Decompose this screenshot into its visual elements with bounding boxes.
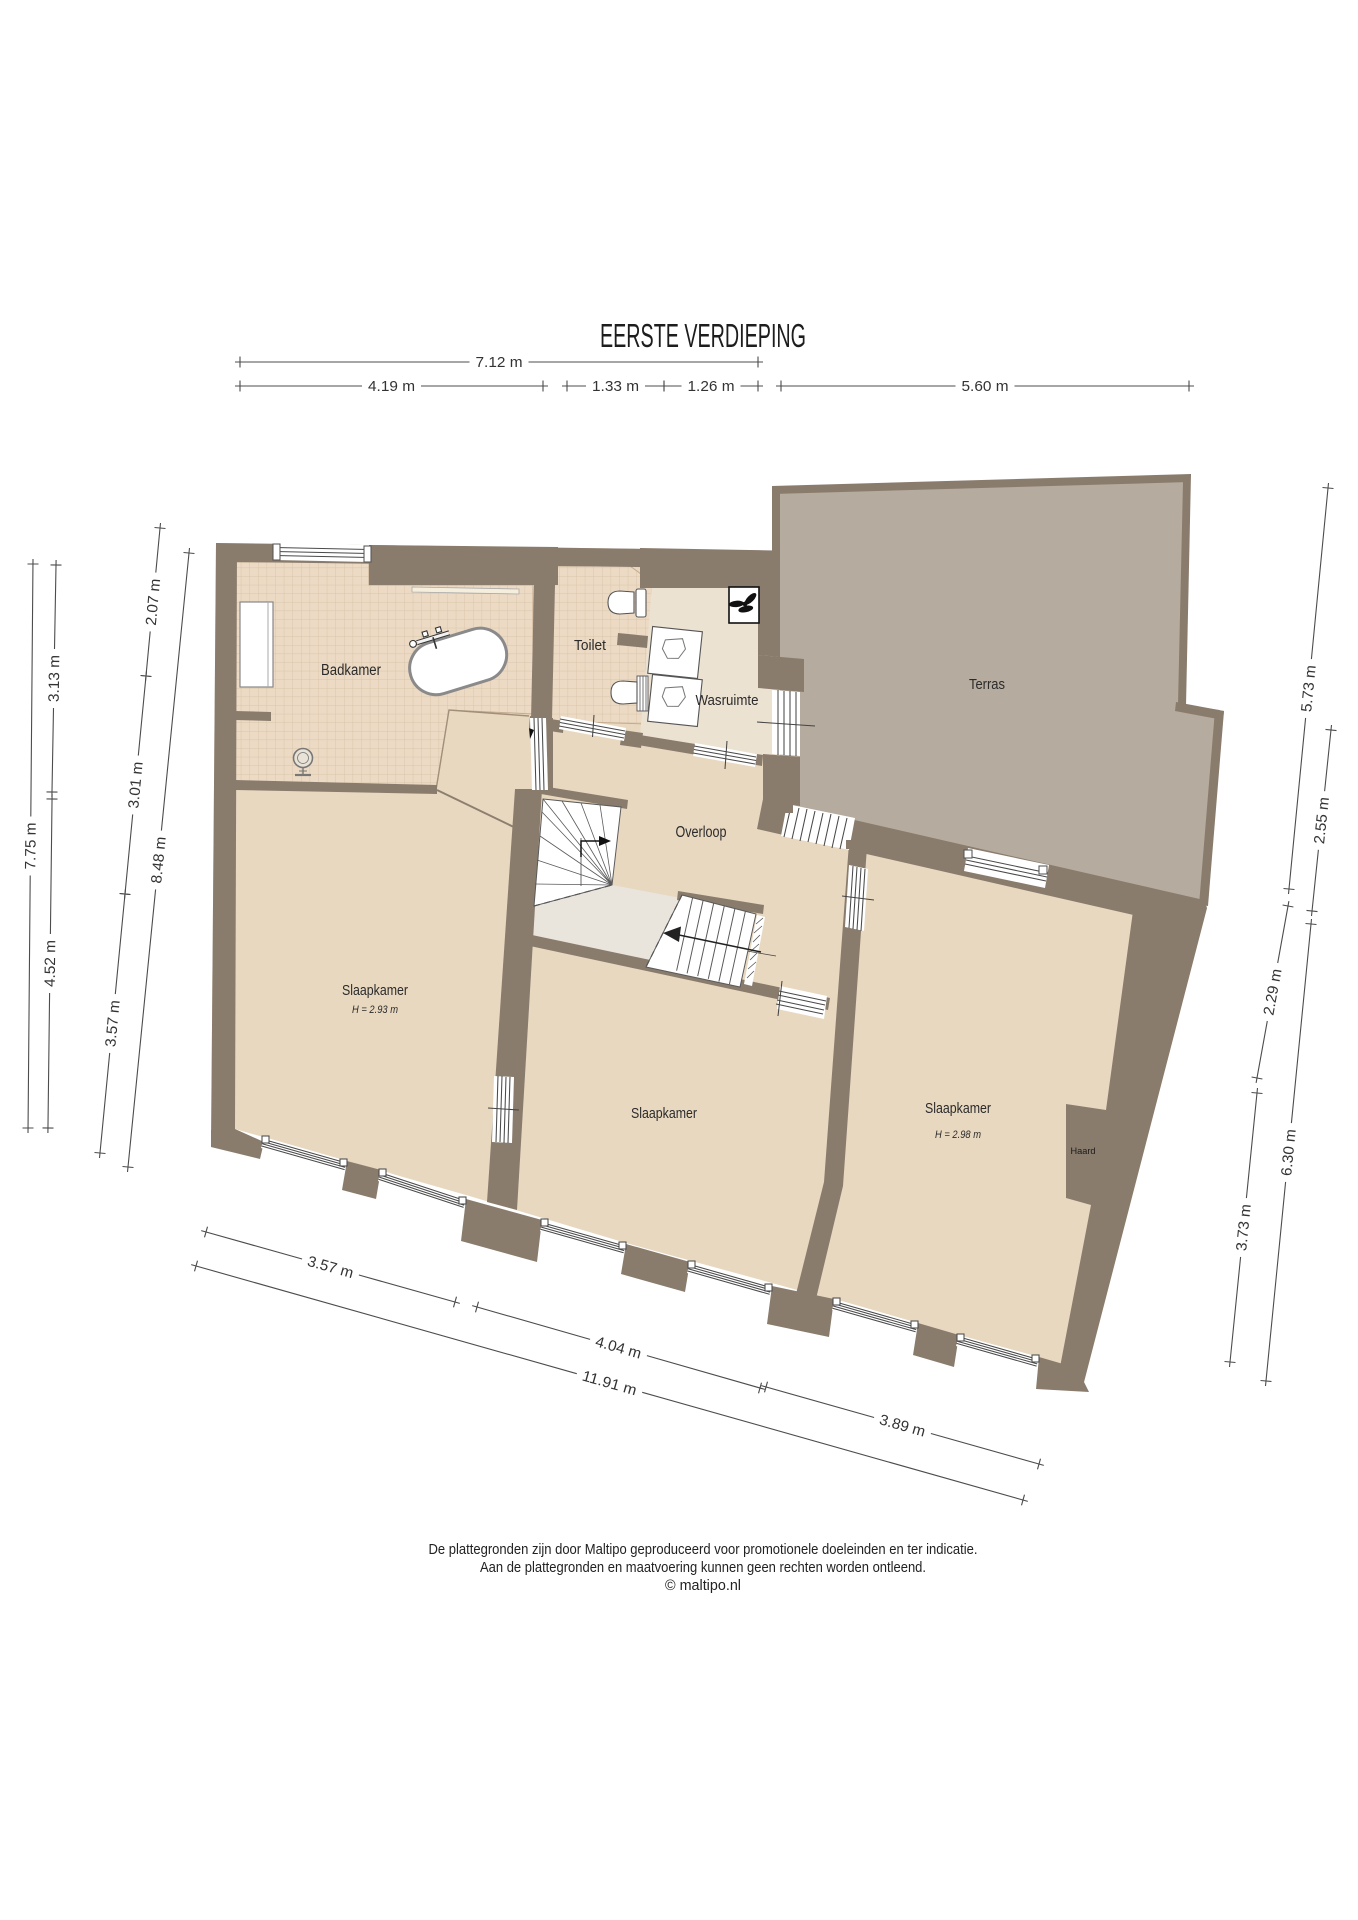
svg-text:1.26 m: 1.26 m	[688, 378, 735, 395]
svg-text:5.60 m: 5.60 m	[962, 378, 1009, 395]
svg-text:4.52 m: 4.52 m	[42, 940, 60, 987]
svg-text:Slaapkamer: Slaapkamer	[631, 1105, 697, 1122]
svg-text:Aan de plattegronden en maatvo: Aan de plattegronden en maatvoering kunn…	[480, 1560, 926, 1576]
svg-text:Overloop: Overloop	[676, 824, 727, 841]
svg-text:H = 2.93 m: H = 2.93 m	[352, 1004, 398, 1016]
svg-text:1.33 m: 1.33 m	[592, 378, 639, 395]
svg-text:Haard: Haard	[1071, 1146, 1096, 1157]
svg-text:3.13 m: 3.13 m	[46, 655, 64, 702]
svg-text:EERSTE VERDIEPING: EERSTE VERDIEPING	[600, 317, 806, 354]
svg-text:De plattegronden zijn door Mal: De plattegronden zijn door Maltipo gepro…	[429, 1542, 978, 1558]
svg-text:Slaapkamer: Slaapkamer	[342, 982, 408, 999]
svg-text:Badkamer: Badkamer	[321, 662, 381, 679]
svg-text:Toilet: Toilet	[574, 637, 607, 654]
svg-text:7.12 m: 7.12 m	[476, 354, 523, 371]
svg-text:© maltipo.nl: © maltipo.nl	[665, 1578, 741, 1594]
svg-text:H = 2.98 m: H = 2.98 m	[935, 1129, 981, 1141]
svg-text:Slaapkamer: Slaapkamer	[925, 1100, 991, 1117]
svg-text:Wasruimte: Wasruimte	[696, 692, 759, 709]
svg-text:Terras: Terras	[969, 676, 1005, 693]
svg-text:4.19 m: 4.19 m	[368, 378, 415, 395]
svg-text:7.75 m: 7.75 m	[22, 822, 39, 869]
